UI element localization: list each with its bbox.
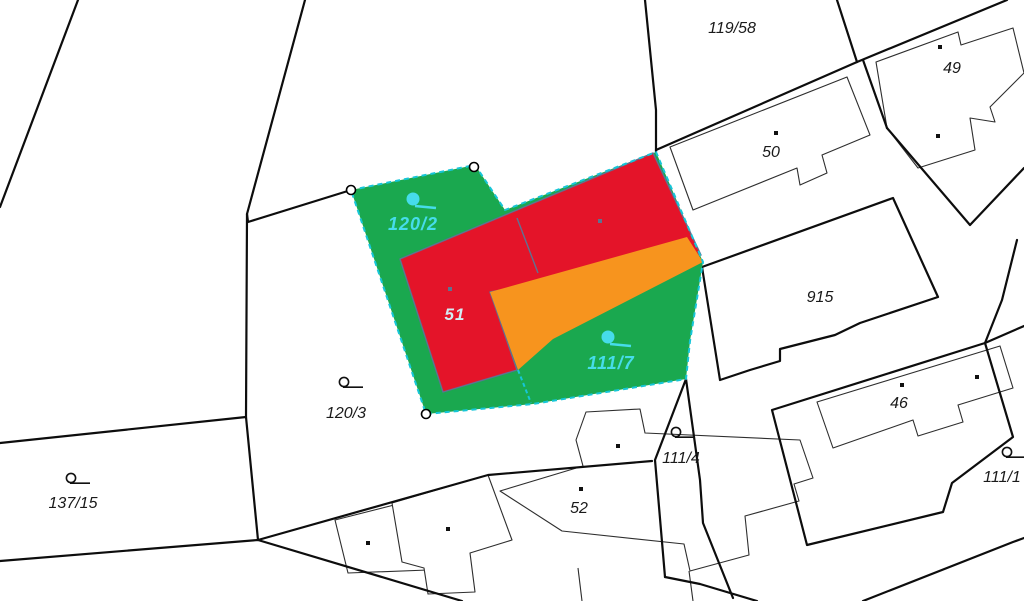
building-label-52: 52 [570, 500, 588, 517]
building-52-annex-left [578, 568, 582, 601]
building-label-50: 50 [762, 144, 780, 161]
parcel-label-111-7: 111/7 [587, 353, 634, 373]
vertex-marker[interactable] [347, 186, 356, 195]
building-label-49: 49 [943, 60, 961, 77]
building-dot [598, 219, 602, 223]
building-label-51: 51 [445, 305, 466, 324]
parcel-link-icon-137-15 [66, 473, 90, 483]
building-label-46: 46 [890, 395, 908, 412]
building-dot [774, 131, 778, 135]
parcel-label-111-4: 111/4 [662, 450, 700, 467]
parcel-link-icon-111-x [1002, 447, 1024, 457]
building-dot [448, 287, 452, 291]
building-49 [876, 28, 1024, 168]
boundary-119-58-corner [837, 0, 857, 62]
boundary-119-58-right [645, 0, 656, 152]
parcel-label-120-3: 120/3 [326, 405, 366, 422]
building-dot [938, 45, 942, 49]
boundary-right-notch [985, 240, 1017, 343]
vertex-marker[interactable] [422, 410, 431, 419]
parcel-link-icon-120-3 [339, 377, 363, 387]
parcel-label-119-58: 119/58 [708, 20, 756, 37]
boundary-137-15-bottom [0, 540, 258, 561]
boundary-bottom-right-diag [863, 538, 1024, 601]
building-dot [366, 541, 370, 545]
building-52-mid [392, 475, 512, 594]
vertex-marker[interactable] [470, 163, 479, 172]
building-dot [446, 527, 450, 531]
boundary-137-15-top [0, 417, 246, 443]
parcel-label-120-2: 120/2 [388, 214, 438, 234]
parcel-label-137-15: 137/15 [49, 495, 98, 512]
building-dot [975, 375, 979, 379]
parcel-label-111-x: 111/1 [983, 469, 1021, 486]
building-dot [900, 383, 904, 387]
building-52-annex-right [689, 571, 693, 601]
boundary-120-3-top [247, 0, 351, 222]
boundary-topleft [0, 0, 78, 207]
cadastral-map: 119/5850499154652120/3137/15111/4111/112… [0, 0, 1024, 601]
boundary-path-bottom [665, 577, 757, 601]
building-dot [579, 487, 583, 491]
building-dot [936, 134, 940, 138]
building-46 [817, 346, 1013, 448]
parcel-label-915: 915 [807, 289, 834, 306]
building-dot [616, 444, 620, 448]
boundary-120-3-left [246, 214, 258, 540]
map-canvas: 119/5850499154652120/3137/15111/4111/112… [0, 0, 1024, 601]
